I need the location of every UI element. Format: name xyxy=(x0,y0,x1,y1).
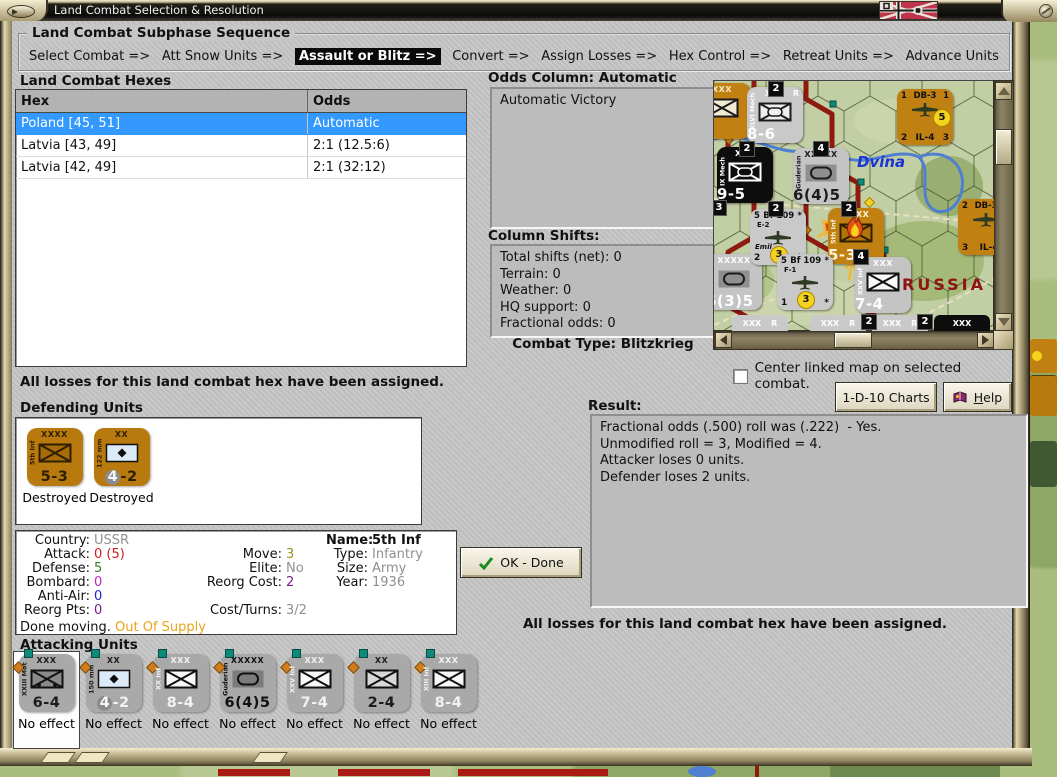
map-unit-partial: XXX xyxy=(934,315,990,331)
unit-status: No effect xyxy=(215,716,280,731)
unit-xxv-inf-7-4[interactable]: XXXXXV Inf7-4No effect xyxy=(282,652,347,748)
info-label-move: Move: xyxy=(188,548,286,562)
background-map-text-partial xyxy=(458,769,608,776)
shift-line-hq-support: HQ support: 0 xyxy=(500,300,706,317)
unit-name-label: 5th Inf xyxy=(28,432,37,474)
map-scroll-up-button[interactable] xyxy=(995,82,1012,100)
unit-counter: XXXXIII Inf8-4 xyxy=(421,654,477,712)
unit-size-label: XX xyxy=(92,656,136,665)
result-line-4: Defender loses 2 units. xyxy=(600,470,1018,487)
map-air-unit-db-3[interactable]: 1DB-312IL-435 xyxy=(897,89,953,145)
losses-note-top: All losses for this land combat hex have… xyxy=(20,374,444,390)
background-map-text-partial xyxy=(338,769,430,776)
titlebar-cap xyxy=(1001,0,1057,22)
background-map-bottom xyxy=(0,766,1057,777)
hex-row-poland-45-51[interactable]: Poland [45, 51]Automatic xyxy=(16,113,466,135)
subphase-convert: Convert => xyxy=(452,49,529,64)
info-footer-done-moving: Done moving. xyxy=(20,620,115,635)
subphase-sequence-title: Land Combat Subphase Sequence xyxy=(27,25,295,41)
subphase-retreat-units: Retreat Units => xyxy=(783,49,894,64)
defending-units-box: XXXX5th Inf5-3DestroyedXX122 mm4-2Destro… xyxy=(15,417,422,525)
odds-panel-title: Odds Column: Automatic xyxy=(488,70,677,86)
unit-counter: XXXXX Inf8-4 xyxy=(153,654,209,712)
unit-strength: 6(4)5 xyxy=(220,695,276,711)
unit-type-symbol xyxy=(231,669,265,689)
info-label-size: Size: xyxy=(326,562,372,576)
unit-info-footer: Done moving. Out Of Supply xyxy=(16,620,456,635)
info-label-name: Name: xyxy=(326,534,372,548)
unit-strength: 4-2 xyxy=(86,695,142,711)
unit-counter: XX150 mm4-2 xyxy=(86,654,142,712)
unit-status: No effect xyxy=(14,716,79,731)
map-horizontal-scrollbar[interactable] xyxy=(713,330,995,350)
unit-5th-inf-5-3[interactable]: XXXX5th Inf5-3Destroyed xyxy=(22,426,87,505)
ok-done-label: OK - Done xyxy=(500,555,563,570)
unit-status: No effect xyxy=(416,716,481,731)
unit-counter: XXXX5th Inf5-3 xyxy=(27,428,83,486)
unit-status: No effect xyxy=(282,716,347,731)
hex-list-title: Land Combat Hexes xyxy=(20,73,171,89)
background-river-partial xyxy=(688,766,716,777)
subphase-sequence-groupbox: Land Combat Subphase Sequence Select Com… xyxy=(18,33,1010,71)
unit-info-panel: Country:USSRName:5th InfAttack:0 (5)Move… xyxy=(15,530,457,635)
unit-counter: XX122 mm4-2 xyxy=(94,428,150,486)
unit-xxiii-mot-6-4[interactable]: XXXXXIII Mot6-4No effect xyxy=(14,652,79,748)
unit-status: Destroyed xyxy=(22,490,87,505)
info-value-reorg-pts: 0 xyxy=(94,604,188,618)
unit-xx-inf-8-4[interactable]: XXXXX Inf8-4No effect xyxy=(148,652,213,748)
unit-strength: 2-4 xyxy=(354,695,410,711)
map-scroll-down-button[interactable] xyxy=(995,313,1012,331)
map-vertical-scrollbar[interactable] xyxy=(993,80,1014,332)
titlebar-corner xyxy=(0,0,48,21)
result-line-1: Fractional odds (.500) roll was (.222) -… xyxy=(600,420,1018,437)
center-map-checkbox[interactable] xyxy=(733,369,748,384)
unit-xx-2-4[interactable]: XX2-4No effect xyxy=(349,652,414,748)
window-menu-button[interactable] xyxy=(7,5,35,18)
info-label-defense: Defense: xyxy=(20,562,94,576)
info-value-move: 3 xyxy=(286,548,326,562)
map-unit-partial: XXXR xyxy=(810,315,866,331)
unit-status: No effect xyxy=(148,716,213,731)
info-value-type: Infantry xyxy=(372,548,457,562)
info-value-elite: No xyxy=(286,562,326,576)
attacking-units-row: XXXXXIII Mot6-4No effectXX150 mm4-2No ef… xyxy=(14,652,1010,748)
unit-type-symbol xyxy=(298,669,332,689)
info-value-anti-air: 0 xyxy=(94,590,188,604)
info-value-defense: 5 xyxy=(94,562,188,576)
info-label-type: Type: xyxy=(326,548,372,562)
help-book-icon xyxy=(953,391,968,404)
background-unit-partial xyxy=(1030,441,1057,487)
screw-decoration xyxy=(1039,4,1053,18)
hex-list-header: HexOdds xyxy=(16,90,466,113)
unit-type-symbol xyxy=(30,669,64,689)
background-forest-partial xyxy=(830,766,1000,777)
shift-line-terrain: Terrain: 0 xyxy=(500,267,706,284)
unit-status: No effect xyxy=(349,716,414,731)
help-button[interactable]: Help xyxy=(943,382,1012,412)
subphase-att-snow-units: Att Snow Units => xyxy=(162,49,283,64)
background-border-partial xyxy=(755,766,759,777)
unit-guderian-6-4-5[interactable]: XXXXXGuderian6(4)5No effect xyxy=(215,652,280,748)
hex-cell: Latvia [43, 49] xyxy=(16,135,308,157)
subphase-hex-control: Hex Control => xyxy=(669,49,771,64)
losses-note-bottom: All losses for this land combat hex have… xyxy=(455,616,1015,632)
title-bar[interactable]: Land Combat Selection & Resolution xyxy=(0,0,1057,21)
shifts-panel: Total shifts (net): 0Terrain: 0Weather: … xyxy=(490,244,716,338)
background-map-dot xyxy=(1032,351,1042,361)
help-button-label: Help xyxy=(974,390,1003,405)
hex-list[interactable]: HexOdds Poland [45, 51]AutomaticLatvia [… xyxy=(15,89,467,367)
window-title: Land Combat Selection & Resolution xyxy=(54,3,264,17)
odds-cell: 2:1 (12.5:6) xyxy=(308,135,467,157)
defending-units-title: Defending Units xyxy=(20,400,143,416)
result-panel: Fractional odds (.500) roll was (.222) -… xyxy=(590,414,1028,608)
unit-status: No effect xyxy=(81,716,146,731)
info-value-bombard: 0 xyxy=(94,576,188,590)
hex-col-odds: Odds xyxy=(308,90,467,113)
map-scroll-left-button[interactable] xyxy=(715,332,732,348)
map-unit-partial: XXXR xyxy=(732,315,788,331)
hex-row-latvia-42-49[interactable]: Latvia [42, 49]2:1 (32:12) xyxy=(16,157,466,179)
map-scroll-right-button[interactable] xyxy=(977,332,994,348)
info-label-reorg-cost: Reorg Cost: xyxy=(188,576,286,590)
unit-strength: 7-4 xyxy=(287,695,343,711)
unit-xiii-inf-8-4[interactable]: XXXXIII Inf8-4No effect xyxy=(416,652,481,748)
info-label-attack: Attack: xyxy=(20,548,94,562)
stack-count-badge: 2 xyxy=(841,201,857,217)
stack-count-badge: 2 xyxy=(768,201,784,217)
combat-map[interactable]: Dvina RUSSIA XXXXXXRXLVI Mech8-6XXXIX Me… xyxy=(713,80,995,332)
german-war-flag-icon xyxy=(880,2,937,19)
unit-type-symbol xyxy=(432,669,466,689)
unit-150-mm-4-2[interactable]: XX150 mm4-2No effect xyxy=(81,652,146,748)
unit-strength: 8-4 xyxy=(153,695,209,711)
unit-name-label: 122 mm xyxy=(95,432,104,474)
hex-col-hex: Hex xyxy=(16,90,308,113)
unit-status: Destroyed xyxy=(89,490,154,505)
unit-counter: XXXXXV Inf7-4 xyxy=(287,654,343,712)
plane-icon xyxy=(777,275,833,290)
attacking-units-title: Attacking Units xyxy=(20,637,138,653)
unit-type-symbol xyxy=(38,443,72,463)
country-label: RUSSIA xyxy=(902,275,986,294)
info-label-cost-turns: Cost/Turns: xyxy=(188,604,286,618)
aircraft-name: DB-3 xyxy=(914,91,937,101)
fire-icon xyxy=(841,214,869,242)
sortie-badge: 3 xyxy=(797,291,815,309)
shift-line-fractional-odds: Fractional odds: 0 xyxy=(500,316,706,333)
subphase-select-combat: Select Combat => xyxy=(29,49,150,64)
map-scrollbar-corner xyxy=(993,330,1014,350)
combat-type-label: Combat Type: xyxy=(512,336,616,352)
map-air-unit-db-3f[interactable]: 2DB-3F3IL-4 xyxy=(958,199,995,255)
unit-strength: 8-4 xyxy=(421,695,477,711)
window-frame-bottom xyxy=(0,748,1032,766)
sortie-badge: 5 xyxy=(933,109,951,127)
land-combat-dialog: Land Combat Subphase Sequence Select Com… xyxy=(12,21,1012,748)
stack-count-badge: 2 xyxy=(739,141,755,157)
odds-panel-text: Automatic Victory xyxy=(500,93,706,110)
info-value-country: USSR xyxy=(94,534,188,548)
unit-size-label: XXXX xyxy=(33,430,77,439)
unit-counter: XXXXXGuderian6(4)5 xyxy=(220,654,276,712)
combat-type: Combat Type: Blitzkrieg xyxy=(488,336,718,352)
subphase-assign-losses: Assign Losses => xyxy=(541,49,657,64)
result-line-3: Attacker loses 0 units. xyxy=(600,453,1018,470)
info-label-reorg-pts: Reorg Pts: xyxy=(20,604,94,618)
unit-name-label: 150 mm xyxy=(87,658,96,700)
unit-size-label: XXXXX xyxy=(226,656,270,665)
unit-name-label: XXV Inf xyxy=(288,658,297,700)
info-value-year: 1936 xyxy=(372,576,457,590)
map-hscroll-thumb[interactable] xyxy=(834,332,872,348)
info-value-cost-turns: 3/2 xyxy=(286,604,326,618)
info-footer-out-of-supply: Out Of Supply xyxy=(115,620,206,635)
stack-count-badge: 2 xyxy=(917,314,933,330)
unit-type-symbol xyxy=(97,669,131,689)
hex-row-latvia-43-49[interactable]: Latvia [43, 49]2:1 (12.5:6) xyxy=(16,135,466,157)
odds-cell: Automatic xyxy=(308,113,467,135)
stack-count-badge: 4 xyxy=(813,141,829,157)
unit-name-label: XXIII Mot xyxy=(20,658,29,700)
unit-type-symbol xyxy=(164,669,198,689)
combat-type-value: Blitzkrieg xyxy=(621,336,694,352)
river-label: Dvina xyxy=(857,153,905,171)
unit-type-symbol xyxy=(365,669,399,689)
odds-cell: 2:1 (32:12) xyxy=(308,157,467,179)
unit-counter: XX2-4 xyxy=(354,654,410,712)
combat-map-panel: Dvina RUSSIA XXXXXXRXLVI Mech8-6XXXIX Me… xyxy=(713,80,1012,348)
info-label-elite: Elite: xyxy=(188,562,286,576)
window-frame-right xyxy=(1012,21,1030,748)
aircraft-name: DB-3F xyxy=(975,201,995,211)
info-label-anti-air: Anti-Air: xyxy=(20,590,94,604)
map-unit-xxx-x[interactable]: XXX xyxy=(713,83,750,139)
map-air-unit-bf-109[interactable]: 5Bf 109*F-11*3 xyxy=(777,254,833,310)
unit-size-label: XXX xyxy=(427,656,471,665)
map-vscroll-thumb[interactable] xyxy=(995,129,1012,165)
info-label-bombard: Bombard: xyxy=(20,576,94,590)
unit-strength: 5-3 xyxy=(27,469,83,485)
unit-counter: XXXXXIII Mot6-4 xyxy=(19,654,75,712)
hex-cell: Poland [45, 51] xyxy=(16,113,308,135)
unit-122-mm-4-2[interactable]: XX122 mm4-2Destroyed xyxy=(89,426,154,505)
hex-cell: Latvia [42, 49] xyxy=(16,157,308,179)
subphase-advance-units: Advance Units xyxy=(906,49,999,64)
stack-count-badge: 2 xyxy=(861,314,877,330)
background-map-text-partial xyxy=(218,769,290,776)
stack-count-badge: 3 xyxy=(713,200,727,216)
unit-size-label: XXX xyxy=(293,656,337,665)
unit-name-label: XX Inf xyxy=(154,658,163,700)
unit-type-symbol xyxy=(105,443,139,463)
aircraft-name: Bf 109 xyxy=(790,256,821,266)
charts-button[interactable]: 1-D-10 Charts xyxy=(835,382,937,412)
unit-name-label: XIII Inf xyxy=(422,658,431,700)
ok-done-button[interactable]: OK - Done xyxy=(460,547,582,578)
info-value-size: Army xyxy=(372,562,457,576)
shift-line-total-shifts-net: Total shifts (net): 0 xyxy=(500,250,706,267)
info-label-country: Country: xyxy=(20,534,94,548)
plane-icon xyxy=(958,212,995,227)
check-icon xyxy=(478,556,494,570)
unit-size-label: XX xyxy=(100,430,144,439)
unit-strength: 4-2 xyxy=(94,469,150,485)
unit-strength: 6-4 xyxy=(19,695,75,711)
subphase-assault-or-blitz: Assault or Blitz => xyxy=(295,48,441,65)
stack-count-badge: 2 xyxy=(768,81,784,97)
result-title: Result: xyxy=(588,398,642,414)
info-value-reorg-cost: 2 xyxy=(286,576,326,590)
background-map-right xyxy=(1030,21,1057,766)
info-value-attack: 0 (5) xyxy=(94,548,188,562)
shift-line-weather: Weather: 0 xyxy=(500,283,706,300)
stack-count-badge: 4 xyxy=(853,249,869,265)
screen: Land Combat Selection & Resolution La xyxy=(0,0,1057,777)
unit-size-label: XXX xyxy=(159,656,203,665)
info-label-year: Year: xyxy=(326,576,372,590)
info-value-name: 5th Inf xyxy=(372,534,457,548)
shifts-panel-title: Column Shifts: xyxy=(488,228,600,244)
odds-panel: Automatic Victory xyxy=(490,87,716,229)
unit-size-label: XXX xyxy=(25,656,69,665)
result-line-2: Unmodified roll = 3, Modified = 4. xyxy=(600,437,1018,454)
background-unit-partial xyxy=(1030,375,1057,416)
unit-name-label: Guderian xyxy=(221,658,230,700)
unit-size-label: XX xyxy=(360,656,404,665)
org-dot-icon xyxy=(347,661,360,674)
charts-button-label: 1-D-10 Charts xyxy=(842,390,929,405)
